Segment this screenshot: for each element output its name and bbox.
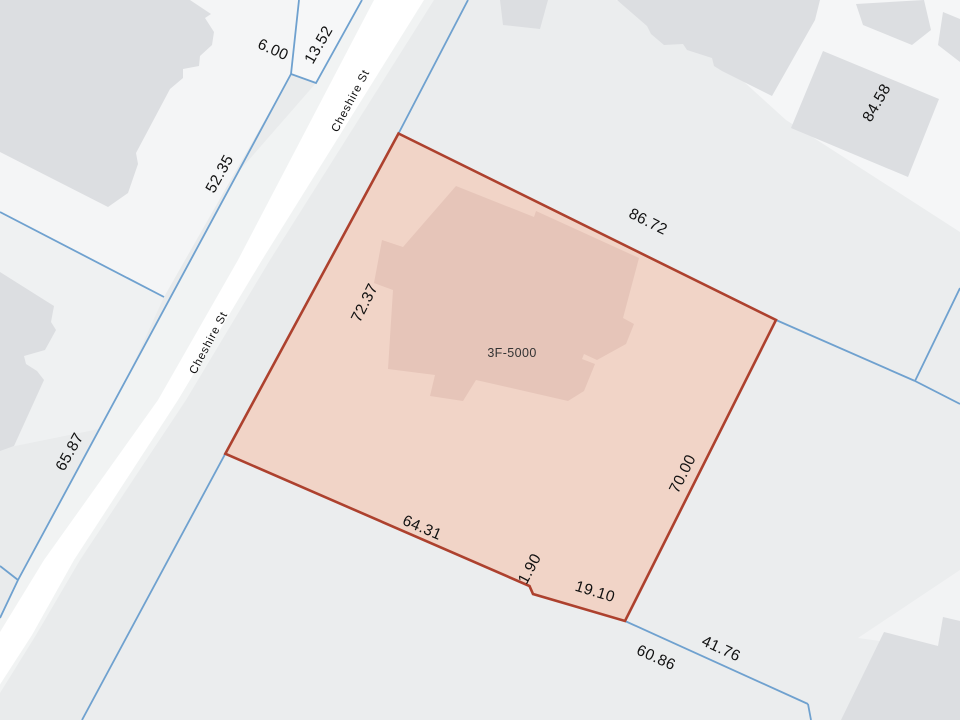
svg-text:3F-5000: 3F-5000	[487, 346, 536, 360]
